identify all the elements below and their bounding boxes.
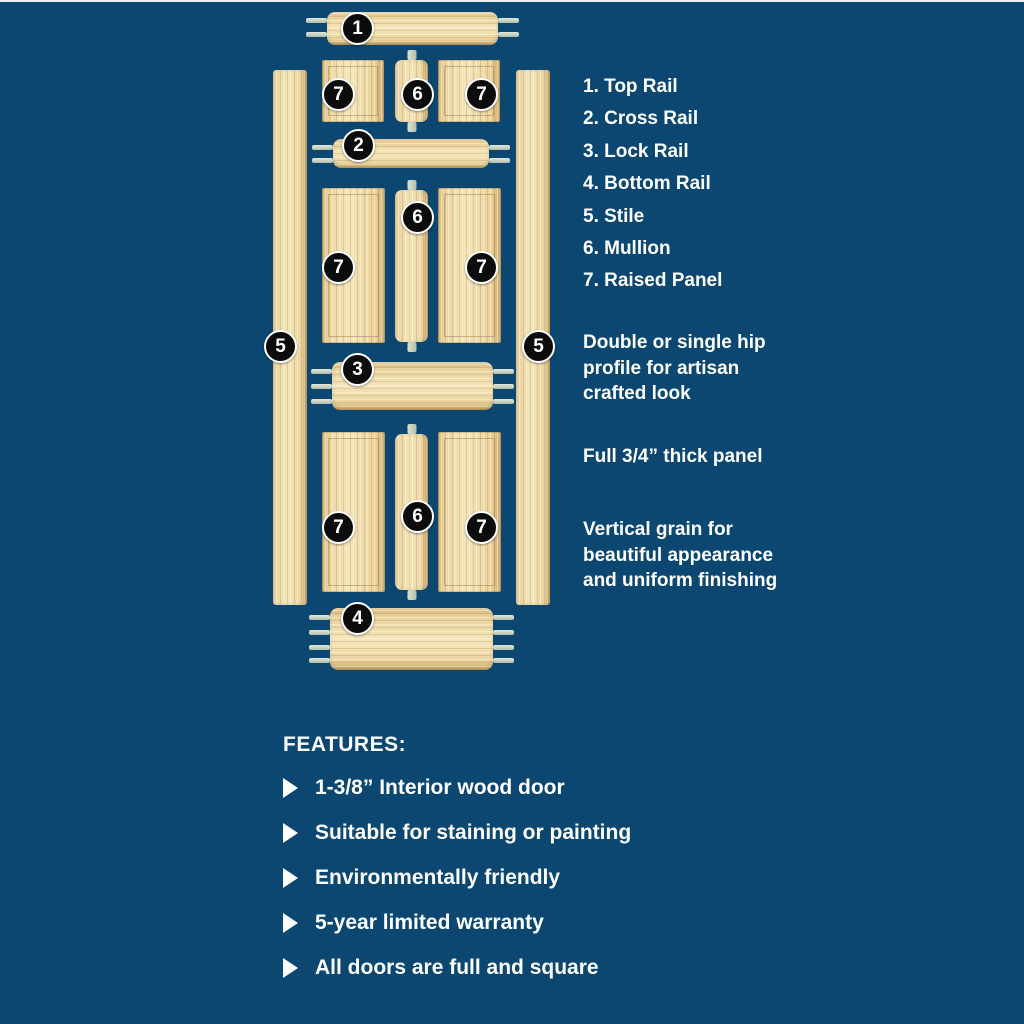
bullet-arrow-icon [283,778,298,798]
feature-item: 5-year limited warranty [283,900,631,945]
legend-item-lock-rail: 3. Lock Rail [583,136,722,168]
raised-panel-piece [438,432,501,592]
badge-raised-panel: 7 [322,251,355,284]
dowel-pin [493,630,514,635]
tenon-stub [407,122,416,132]
dowel-pin [489,145,510,150]
feature-label: Environmentally friendly [315,866,560,890]
note-line: crafted look [583,381,766,407]
badge-bottom-rail: 4 [341,602,374,635]
feature-label: 1-3/8” Interior wood door [315,776,565,800]
dowel-pin [309,645,330,650]
tenon-stub [407,180,416,190]
badge-raised-panel: 7 [465,511,498,544]
bullet-arrow-icon [283,958,298,978]
tenon-stub [407,424,416,434]
dowel-pin [493,658,514,663]
dowel-pin [312,158,333,163]
badge-stile: 5 [264,330,297,363]
feature-label: Suitable for staining or painting [315,821,631,845]
features-heading: FEATURES: [283,733,631,757]
legend-item-mullion: 6. Mullion [583,233,722,265]
dowel-pin [306,18,327,23]
note-line: beautiful appearance [583,543,777,569]
bullet-arrow-icon [283,868,298,888]
note-line: Full 3/4” thick panel [583,444,763,470]
legend-item-raised-panel: 7. Raised Panel [583,265,722,297]
note-vertical-grain: Vertical grain for beautiful appearance … [583,517,777,594]
features-section: FEATURES: 1-3/8” Interior wood door Suit… [283,733,631,990]
badge-cross-rail: 2 [342,129,375,162]
bullet-arrow-icon [283,913,298,933]
badge-raised-panel: 7 [465,78,498,111]
bullet-arrow-icon [283,823,298,843]
note-line: profile for artisan [583,356,766,382]
badge-lock-rail: 3 [341,353,374,386]
parts-legend: 1. Top Rail 2. Cross Rail 3. Lock Rail 4… [583,71,722,298]
tenon-stub [407,50,416,60]
feature-item: Suitable for staining or painting [283,810,631,855]
dowel-pin [493,399,514,404]
feature-item: All doors are full and square [283,945,631,990]
legend-item-top-rail: 1. Top Rail [583,71,722,103]
dowel-pin [311,399,332,404]
badge-raised-panel: 7 [322,78,355,111]
badge-stile: 5 [522,330,555,363]
feature-label: All doors are full and square [315,956,599,980]
dowel-pin [311,384,332,389]
dowel-pin [498,32,519,37]
badge-top-rail: 1 [341,12,374,45]
feature-item: Environmentally friendly [283,855,631,900]
tenon-stub [407,590,416,600]
note-hip-profile: Double or single hip profile for artisan… [583,330,766,407]
note-panel-thickness: Full 3/4” thick panel [583,444,763,470]
tenon-stub [407,342,416,352]
dowel-pin [493,384,514,389]
legend-item-cross-rail: 2. Cross Rail [583,103,722,135]
dowel-pin [312,145,333,150]
door-parts-infographic: 1 7 6 7 2 5 5 6 7 7 [0,0,1024,1024]
dowel-pin [493,645,514,650]
feature-item: 1-3/8” Interior wood door [283,765,631,810]
note-line: Double or single hip [583,330,766,356]
badge-mullion: 6 [401,78,434,111]
badge-raised-panel: 7 [322,511,355,544]
legend-item-stile: 5. Stile [583,201,722,233]
badge-mullion: 6 [401,500,434,533]
dowel-pin [493,615,514,620]
badge-mullion: 6 [401,201,434,234]
feature-label: 5-year limited warranty [315,911,544,935]
badge-raised-panel: 7 [465,251,498,284]
dowel-pin [309,658,330,663]
dowel-pin [489,158,510,163]
dowel-pin [309,630,330,635]
note-line: and uniform finishing [583,568,777,594]
dowel-pin [311,369,332,374]
legend-item-bottom-rail: 4. Bottom Rail [583,168,722,200]
dowel-pin [309,615,330,620]
dowel-pin [493,369,514,374]
dowel-pin [498,18,519,23]
note-line: Vertical grain for [583,517,777,543]
dowel-pin [306,32,327,37]
top-edge-line [0,0,1024,2]
